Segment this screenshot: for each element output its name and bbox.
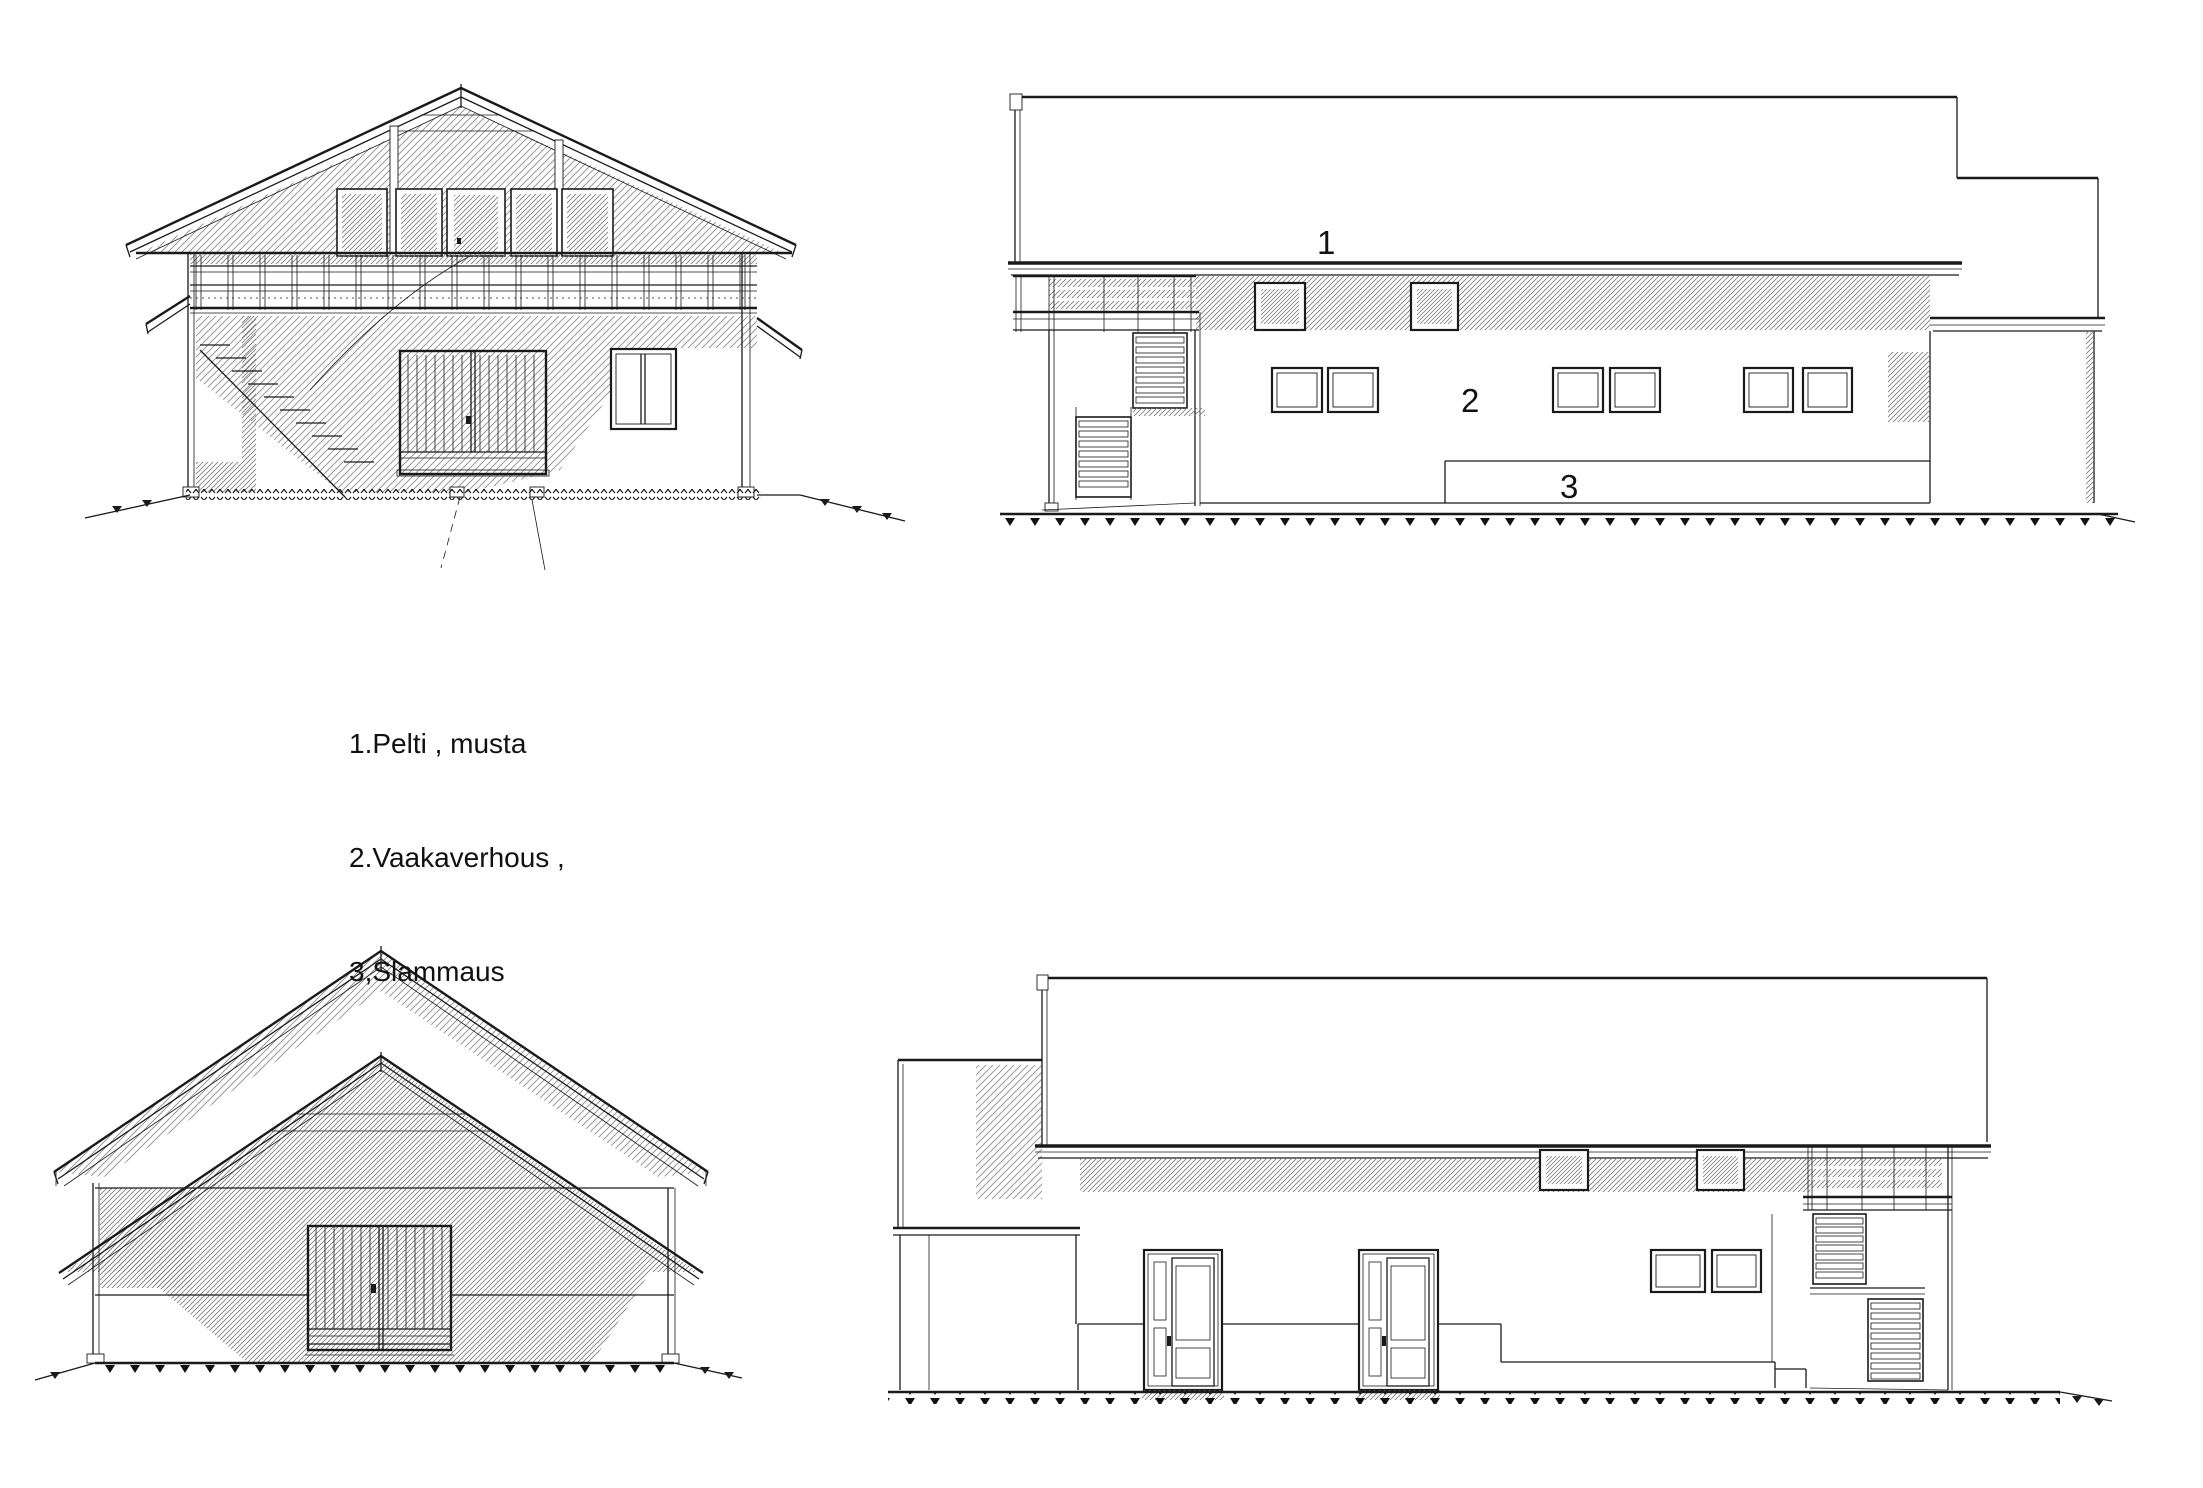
balcony-stair: [1803, 1146, 1952, 1390]
material-marker-2: 2: [1461, 384, 1479, 417]
wall-windows: [1651, 1250, 1761, 1292]
main-roof: [1008, 94, 1962, 275]
view-side-elevation-a: [1000, 94, 2135, 526]
entry-door-1: [1142, 1250, 1224, 1400]
legend: 1.Pelti , musta 2.Vaakaverhous , 3,Slamm…: [349, 649, 565, 1067]
view-side-elevation-b: [888, 975, 2112, 1406]
balcony-railing: [136, 253, 792, 313]
legend-item-2: 2.Vaakaverhous ,: [349, 839, 565, 877]
annex: [1888, 178, 2105, 503]
elevations-svg: [0, 0, 2203, 1488]
plinth: [1445, 461, 1930, 503]
entry-door-2: [1357, 1250, 1440, 1400]
ground: [888, 1392, 2112, 1406]
porch-stair-screen: [1076, 333, 1205, 500]
annex-left: [893, 1060, 1080, 1390]
main-roof: [1035, 975, 1991, 1158]
legend-item-3: 3,Slammaus: [349, 953, 565, 991]
drawing-sheet: 1 2 3 1.Pelti , musta 2.Vaakaverhous , 3…: [0, 0, 2203, 1488]
legend-item-1: 1.Pelti , musta: [349, 725, 565, 763]
ground: [35, 1363, 742, 1380]
ground: [1000, 514, 2135, 526]
material-marker-3: 3: [1560, 470, 1578, 503]
wall-windows: [1272, 368, 1852, 412]
foundation-dashes: [441, 497, 545, 570]
lower-window: [611, 349, 676, 429]
ground: [85, 489, 905, 521]
view-gable-section: [85, 84, 905, 570]
material-marker-1: 1: [1317, 226, 1335, 259]
attic-door: [447, 189, 505, 256]
